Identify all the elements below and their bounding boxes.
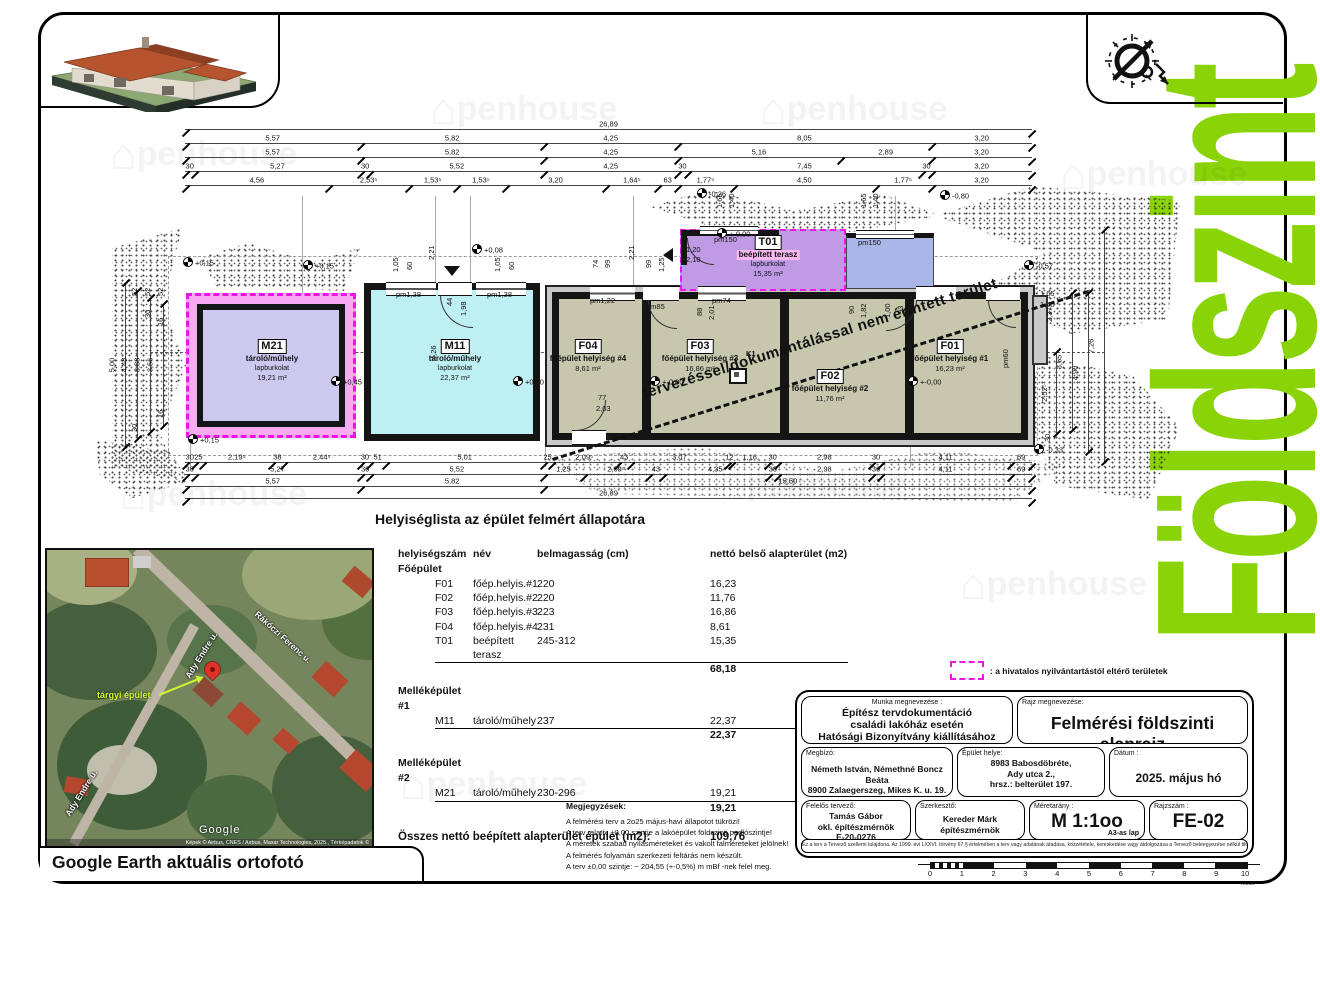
- k1-label: K1: [746, 350, 756, 358]
- dim-segment: 1,77⁵: [875, 178, 931, 187]
- list-line: okl. építészmérnök: [806, 822, 906, 833]
- deviation-legend: : a hivatalos nyilvántartástól eltérő te…: [950, 661, 1168, 680]
- dim-label: 1,53⁵: [472, 176, 490, 184]
- scale-number: 3: [1023, 869, 1027, 878]
- map-caption: Google Earth aktuális ortofotó: [40, 848, 422, 873]
- dim-segment: 5,57: [185, 479, 360, 488]
- plan-label: 44: [446, 298, 454, 306]
- work-title-cell: Munka megnevezése : Építész tervdokument…: [801, 696, 1013, 744]
- dim-label: 1,25: [556, 465, 571, 473]
- dim-label: 4,48: [121, 358, 129, 373]
- dim-segment: 2,09⁵: [583, 467, 649, 476]
- level-marker: +-0,00: [908, 376, 941, 386]
- dim-label: 26,89: [599, 120, 618, 128]
- room-table: helyiségszámnévbelmagasság (cm)nettó bel…: [398, 546, 858, 845]
- dim-label: 2,89: [878, 148, 893, 156]
- dim-label: 2,98: [817, 453, 832, 461]
- list-line: építészmérnök: [920, 825, 1020, 836]
- dim-segment: 30: [922, 164, 931, 173]
- dim-label: 30: [361, 453, 369, 461]
- dim-segment: 30: [678, 164, 687, 173]
- plan-label: 1,25: [658, 257, 666, 272]
- dim-chain: 4,562,53⁵1,53⁵1,53⁵3,201,64⁵631,77⁵4,501…: [185, 176, 1032, 186]
- dim-segment: 30: [360, 467, 369, 476]
- table-row: M21tároló/műhely230-29619,21: [398, 786, 858, 800]
- table-subtotal-row: 68,18: [398, 662, 858, 677]
- dim-label: 3,20: [974, 162, 989, 170]
- dim-label: 5,57: [265, 134, 280, 142]
- plan-label: 60: [406, 262, 414, 270]
- list-line: Németh István, Némethné Boncz Beáta: [806, 764, 948, 785]
- table-cell: beépített terasz: [473, 634, 537, 662]
- scale-segment: [1152, 863, 1184, 868]
- dim-segment: 5,82: [360, 136, 543, 145]
- dim-segment: 43: [617, 455, 631, 464]
- plan-label: 1,40: [872, 193, 880, 208]
- dim-label: 7,45: [797, 162, 812, 170]
- legend-dashed-box-icon: [950, 661, 984, 680]
- dim-label: 1,53⁵: [424, 176, 442, 184]
- room-label-m21: M21 tároló/műhely lapburkolat 19,21 m²: [246, 336, 298, 383]
- dim-label: 8,05: [797, 134, 812, 142]
- level-mark-icon: [908, 376, 918, 386]
- dim-label: 4,25: [603, 148, 618, 156]
- table-header-cell: nettó belső alapterület (m2): [710, 546, 851, 562]
- table-cell: 220: [537, 591, 710, 605]
- scale-bar: 012345678910 méter: [930, 858, 1248, 882]
- table-cell: 245-312: [537, 634, 710, 662]
- dim-label: 1,77⁵: [697, 176, 715, 184]
- level-mark-icon: [472, 244, 482, 254]
- plan-label: 1,05: [494, 257, 502, 272]
- table-group-row: Melléképület #2: [398, 756, 858, 786]
- dim-segment: 30: [871, 467, 880, 476]
- table-row: T01beépített terasz245-31215,35: [398, 634, 858, 662]
- level-marker: +0,20: [513, 376, 544, 386]
- table-cell: tároló/műhely: [473, 714, 537, 728]
- level-marker: -0,80: [940, 190, 969, 200]
- dim-label: 30: [872, 453, 880, 461]
- dim-label: 3,07: [672, 453, 687, 461]
- dim-segment: 3,07: [631, 455, 728, 464]
- dim-label: 2,98: [817, 465, 832, 473]
- table-cell: 16,23: [710, 577, 851, 591]
- table-cell: 16,86: [710, 605, 851, 619]
- dim-label: 5,82: [445, 477, 460, 485]
- scale-unit: méter: [1241, 881, 1255, 887]
- scale-number: 10 méter: [1241, 869, 1255, 887]
- partition-wall: [780, 299, 789, 433]
- plan-label: 74: [592, 260, 600, 268]
- title-block: Munka megnevezése : Építész tervdokument…: [795, 690, 1254, 858]
- target-house: [227, 701, 262, 735]
- scale-segment: [1184, 863, 1216, 868]
- plan-label: 52: [144, 288, 152, 296]
- dim-label: 30: [361, 162, 369, 170]
- dim-chain: 5,575,824,255,162,893,20: [185, 148, 1032, 158]
- plan-label: pm60: [1002, 349, 1010, 368]
- plan-label: 1,98: [460, 301, 468, 316]
- plan-label: 1,65: [716, 193, 724, 208]
- table-row: F03főép.helyis.#322316,86: [398, 605, 858, 619]
- drawing-sheet: Földszint ⌂penhouse ⌂penhouse ⌂: [0, 0, 1320, 997]
- target-label: tárgyi épület: [97, 690, 151, 700]
- table-cell: M21: [398, 786, 473, 800]
- level-mark-icon: [188, 434, 198, 444]
- plan-label: pm74: [712, 297, 731, 305]
- number-cell: Rajzszám : FE-02: [1149, 800, 1248, 840]
- dim-segment: 1,53⁵: [457, 178, 505, 187]
- room-label-f02: F02 főépület helyiség #2 11,76 m²: [792, 366, 868, 404]
- dim-segment: 3,20: [931, 150, 1032, 159]
- dim-label: 5,57: [265, 148, 280, 156]
- dim-segment: 3,20: [505, 178, 606, 187]
- level-marker: +-0,00: [650, 376, 683, 386]
- dim-label: 30: [186, 453, 194, 461]
- dim-segment: 5,27: [194, 467, 360, 476]
- list-line: Tamás Gábor: [806, 811, 906, 822]
- room-label-f01: F01 főépület helyiség #1 16,23 m²: [912, 336, 988, 374]
- dim-label: 2,19⁵: [228, 453, 246, 461]
- dim-label: 1,77⁵: [894, 176, 912, 184]
- dim-label: 2,52⁵: [1041, 384, 1049, 402]
- list-line: hrsz.: belterület 197.: [962, 779, 1100, 790]
- table-header-row: helyiségszámnévbelmagasság (cm)nettó bel…: [398, 546, 858, 562]
- table-cell: F02: [398, 591, 473, 605]
- table-cell: [398, 662, 473, 677]
- dim-label: 5,27: [270, 162, 285, 170]
- drawing-number: FE-02: [1154, 811, 1243, 833]
- dim-label: 2,09⁵: [607, 465, 625, 473]
- dim-segment: 1,77⁵: [678, 178, 734, 187]
- dim-segment: 4,11: [881, 467, 1010, 476]
- level-marker: +0,15: [303, 260, 334, 270]
- dim-label: 4,56: [250, 176, 265, 184]
- table-group-row: Főépület: [398, 562, 858, 577]
- dim-segment: 69: [1010, 455, 1032, 464]
- scale-number: 4: [1055, 869, 1059, 878]
- dim-segment: 7,45: [687, 164, 922, 173]
- spacer: [398, 743, 858, 756]
- plan-label: 2,10: [686, 256, 701, 264]
- dim-label: 4,25: [603, 134, 618, 142]
- notes-title: Megjegyzések:: [566, 801, 801, 811]
- dim-segment: 30: [360, 164, 369, 173]
- dim-segment: 5,57: [185, 136, 360, 145]
- plan-label: 99: [645, 260, 653, 268]
- dim-label: 4,50: [797, 176, 812, 184]
- dim-segment: 2,89: [840, 150, 931, 159]
- dim-segment: 5,52: [370, 164, 544, 173]
- notes-block: Megjegyzések: A felmérési terv a 2o25 má…: [566, 801, 801, 872]
- dim-label: 25: [543, 453, 551, 461]
- dim-label: 5,01: [457, 453, 472, 461]
- table-cell: 8,61: [710, 620, 851, 634]
- dim-label: 4,35: [708, 465, 723, 473]
- table-cell: [473, 662, 537, 677]
- table-cell: főép.helyis.#2: [473, 591, 537, 605]
- dim-label: 30: [769, 453, 777, 461]
- list-line: Hatósági Bizonyítvány kiállításához: [806, 731, 1008, 743]
- dim-segment: 5,27: [194, 164, 360, 173]
- dim-segment: 38: [271, 455, 283, 464]
- table-row: F04főép.helyis.#42318,61: [398, 620, 858, 634]
- level-mark-icon: [1024, 260, 1034, 270]
- dim-label: 5,57: [265, 477, 280, 485]
- dim-segment: 26,89: [185, 122, 1032, 131]
- plan-label: 1,82: [860, 303, 868, 318]
- dim-label: 3,56: [147, 358, 155, 373]
- table-cell: T01: [398, 634, 473, 662]
- dim-label: 1,16: [742, 453, 757, 461]
- plan-label: 77: [598, 394, 606, 402]
- table-cell: F04: [398, 620, 473, 634]
- scale-segment: [1089, 863, 1121, 868]
- dim-label: 3,20: [974, 134, 989, 142]
- dim-segment: 3,20: [931, 164, 1032, 173]
- plan-label: 3,95: [643, 347, 651, 362]
- plan-label: 90: [848, 306, 856, 314]
- plan-label: 93: [897, 306, 905, 314]
- dim-segment: 3,20: [931, 178, 1032, 187]
- dim-label: 2,53⁵: [360, 176, 378, 184]
- dim-label: 30: [769, 465, 777, 473]
- plan-label: 1,20: [686, 246, 701, 254]
- scale-number: 0: [928, 869, 932, 878]
- table-cell: 223: [537, 605, 710, 619]
- plan-label: 52: [157, 288, 165, 296]
- scale-number: 9: [1214, 869, 1218, 878]
- dim-label: 43: [652, 465, 660, 473]
- plan-label: 30: [131, 424, 139, 432]
- table-cell: F03: [398, 605, 473, 619]
- table-cell: [473, 728, 537, 743]
- list-line: Ady utca 2.,: [962, 769, 1100, 780]
- dim-chain-vertical: 7,26: [1094, 230, 1105, 462]
- level-mark-icon: [650, 376, 660, 386]
- table-row: F01főép.helyis.#122016,23: [398, 577, 858, 591]
- scale-number: 2: [992, 869, 996, 878]
- list-line: A méretek szabad nyílásméreteket és vako…: [566, 838, 801, 849]
- dim-label: 4,11: [939, 465, 953, 473]
- plan-label: 52: [131, 288, 139, 296]
- dim-label: 3,88: [134, 358, 142, 373]
- room-label-t01: T01 beépített terasz lapburkolat 15,35 m…: [737, 232, 800, 279]
- dim-segment: 8,05: [678, 136, 932, 145]
- dim-label: 4,25: [603, 162, 618, 170]
- dim-label: 5,52: [450, 465, 465, 473]
- dim-label: 2,09⁵: [576, 453, 594, 461]
- designer-cell: Felelős tervező: Tamás Gáborokl. építész…: [801, 800, 911, 840]
- plan-label: 2,21: [628, 245, 636, 260]
- plan-label: 4,26: [430, 345, 438, 360]
- drawing-title-cell: Rajz megnevezése: Felmérési földszinti a…: [1017, 696, 1248, 744]
- room-label-f04: F04 főépület helyiség #4 8,61 m²: [550, 336, 626, 374]
- table-header-cell: belmagasság (cm): [537, 546, 710, 562]
- table-cell: 237: [537, 714, 710, 728]
- table-cell: 231: [537, 620, 710, 634]
- group-label: Melléképület #2: [398, 756, 473, 786]
- scale-segment: [1215, 863, 1247, 868]
- dim-segment: 69: [1010, 467, 1032, 476]
- plan-label: pm1,38: [396, 291, 421, 299]
- plan-label: pm1,38: [487, 291, 512, 299]
- dim-label: 4,11: [939, 453, 953, 461]
- dim-label: 5,52: [450, 162, 465, 170]
- level-marker: +0,08: [472, 244, 503, 254]
- spacer: [398, 677, 858, 684]
- plan-label: 99: [604, 260, 612, 268]
- level-mark-icon: [183, 257, 193, 267]
- plan-label: 2,01: [708, 305, 716, 320]
- dim-label: 30: [186, 465, 194, 473]
- table-cell: tároló/műhely: [473, 786, 537, 800]
- dim-segment: 1,53⁵: [409, 178, 457, 187]
- dim-label: 38: [273, 453, 281, 461]
- dim-label: 30: [922, 162, 930, 170]
- dim-label: 2,44⁵: [313, 453, 331, 461]
- scale-number: 6: [1119, 869, 1123, 878]
- plan-label: 30: [144, 310, 152, 318]
- table-cell: 11,76: [710, 591, 851, 605]
- level-mark-icon: [1034, 444, 1044, 454]
- aerial-photo: Ady Endre u. Rákóczi Ferenc u. Ady Endre…: [45, 548, 374, 849]
- dim-segment: 5,82: [360, 479, 543, 488]
- room-label-f03: F03 főépület helyiség #3 16,86 m²: [662, 336, 738, 374]
- dim-segment: 43: [649, 467, 663, 476]
- site-cell: Épület helye: 8983 Babosdöbréte,Ady utca…: [957, 747, 1105, 797]
- dim-segment: 4,25: [544, 150, 678, 159]
- dim-label: 5,00: [109, 358, 117, 373]
- dim-label: 69: [1017, 465, 1025, 473]
- map-caption-bar: Google Earth aktuális ortofotó: [40, 846, 424, 881]
- scale-segment: [1026, 863, 1058, 868]
- plan-label: 2,03: [596, 405, 611, 413]
- plan-label: 1,05: [392, 257, 400, 272]
- level-marker: -0,57: [1024, 260, 1053, 270]
- legal-note: Ez a terv a Tervező szellemi tulajdona. …: [801, 839, 1248, 853]
- dim-segment: 30: [768, 467, 777, 476]
- dim-segment: 4,56: [185, 178, 329, 187]
- list-line: 8983 Babosdöbréte,: [962, 758, 1100, 769]
- dim-segment: 30: [185, 455, 194, 464]
- dim-chain: 26,89: [185, 489, 1032, 499]
- plan-label: 16: [157, 410, 165, 418]
- table-cell: főép.helyis.#1: [473, 577, 537, 591]
- table-cell: [537, 728, 710, 743]
- dim-chain: 5,575,8215,50: [185, 477, 1032, 487]
- dim-segment: 30: [360, 455, 369, 464]
- google-logo: Google: [199, 824, 240, 836]
- dim-label: 51: [374, 453, 382, 461]
- list-line: 8900 Zalaegerszeg, Mikes K. u. 19.: [806, 785, 948, 796]
- subtotal-value: 68,18: [710, 662, 851, 677]
- table-cell: 15,35: [710, 634, 851, 662]
- plan-label: 60: [508, 262, 516, 270]
- dim-segment: 30: [185, 467, 194, 476]
- dim-chain-vertical: 4,90: [1078, 293, 1089, 452]
- dim-chain: 26,89: [185, 120, 1032, 130]
- room-list-caption: Helyiséglista az épület felmért állapotá…: [250, 511, 770, 527]
- scale-segment: [1057, 863, 1089, 868]
- table-row: M11tároló/műhely23722,37: [398, 714, 858, 728]
- dim-label: 5,82: [445, 134, 460, 142]
- dim-segment: 3,20: [931, 136, 1032, 145]
- dim-label: 30: [872, 465, 880, 473]
- dim-segment: 1,16: [731, 455, 768, 464]
- dim-segment: 51: [370, 455, 386, 464]
- dim-label: 30: [186, 162, 194, 170]
- dim-segment: 1,64⁵: [606, 178, 658, 187]
- scale-number: 1: [960, 869, 964, 878]
- dim-label: 15,50: [779, 477, 798, 485]
- dim-chain: 5,575,824,258,053,20: [185, 134, 1032, 144]
- plan-label: pm85: [646, 303, 665, 311]
- dim-segment: 2,98: [778, 467, 872, 476]
- table-cell: F01: [398, 577, 473, 591]
- scale-segment: [1121, 863, 1153, 868]
- level-marker: +0,15: [183, 257, 214, 267]
- scale-bar-numbers: 012345678910 méter: [930, 869, 1248, 879]
- dim-segment: 4,25: [544, 136, 678, 145]
- dim-segment: 26,89: [185, 491, 1032, 500]
- table-subtotal-row: 22,37: [398, 728, 858, 743]
- dim-label: 30: [361, 465, 369, 473]
- dim-segment: 4,50: [733, 178, 875, 187]
- dim-segment: 25: [194, 455, 202, 464]
- drawing-title: Felmérési földszinti alaprajz: [1022, 713, 1243, 744]
- plan-label: 2,37⁵: [1046, 304, 1054, 322]
- dim-label: 3,20: [974, 148, 989, 156]
- dim-segment: 2,19⁵: [202, 455, 271, 464]
- dim-label: 5,82: [445, 148, 460, 156]
- plan-label: 30: [1044, 434, 1052, 442]
- dim-segment: 5,16: [678, 150, 841, 159]
- table-header-cell: név: [473, 546, 537, 562]
- notes-lines: A felmérési terv a 2o25 május-havi állap…: [566, 816, 801, 872]
- dim-segment: 4,11: [881, 455, 1011, 464]
- dim-label: 3,20: [548, 176, 563, 184]
- list-line: A felmérési terv a 2o25 május-havi állap…: [566, 816, 801, 827]
- dim-label: 25: [194, 453, 202, 461]
- plan-label: 1,40: [728, 193, 736, 208]
- dim-segment: 5,52: [370, 467, 544, 476]
- dim-chain-vertical: 3,65: [1062, 293, 1073, 430]
- plan-label: 1,00: [884, 303, 892, 318]
- plan-label: 16: [157, 318, 165, 326]
- table-cell: 220: [537, 577, 710, 591]
- dim-label: 63: [663, 176, 671, 184]
- table-cell: [473, 801, 537, 816]
- dim-chain-vertical: 2,52⁵: [1046, 352, 1057, 434]
- partition-wall: [642, 299, 651, 433]
- level-mark-icon: [697, 188, 707, 198]
- table-header-cell: helyiségszám: [398, 546, 473, 562]
- dim-label: 30: [678, 162, 686, 170]
- client-cell: Megbízó: Németh István, Némethné Boncz B…: [801, 747, 953, 797]
- dim-chain: 30252,19⁵382,44⁵30515,01252,09⁵433,07121…: [185, 453, 1032, 463]
- table-group-row: Melléképület #1: [398, 684, 858, 714]
- list-line: Építész tervdokumentáció: [806, 707, 1008, 719]
- dim-segment: 15,50: [544, 479, 1032, 488]
- scale-number: 5: [1087, 869, 1091, 878]
- list-line: családi lakóház esetén: [806, 719, 1008, 731]
- dim-label: 1,64⁵: [623, 176, 641, 184]
- terrain-hatch: [650, 190, 940, 232]
- list-line: A felmérés folyamán szerkezeti feltárás …: [566, 850, 801, 861]
- date-cell: Dátum : 2025. május hó: [1109, 747, 1248, 797]
- dim-label: 3,20: [974, 176, 989, 184]
